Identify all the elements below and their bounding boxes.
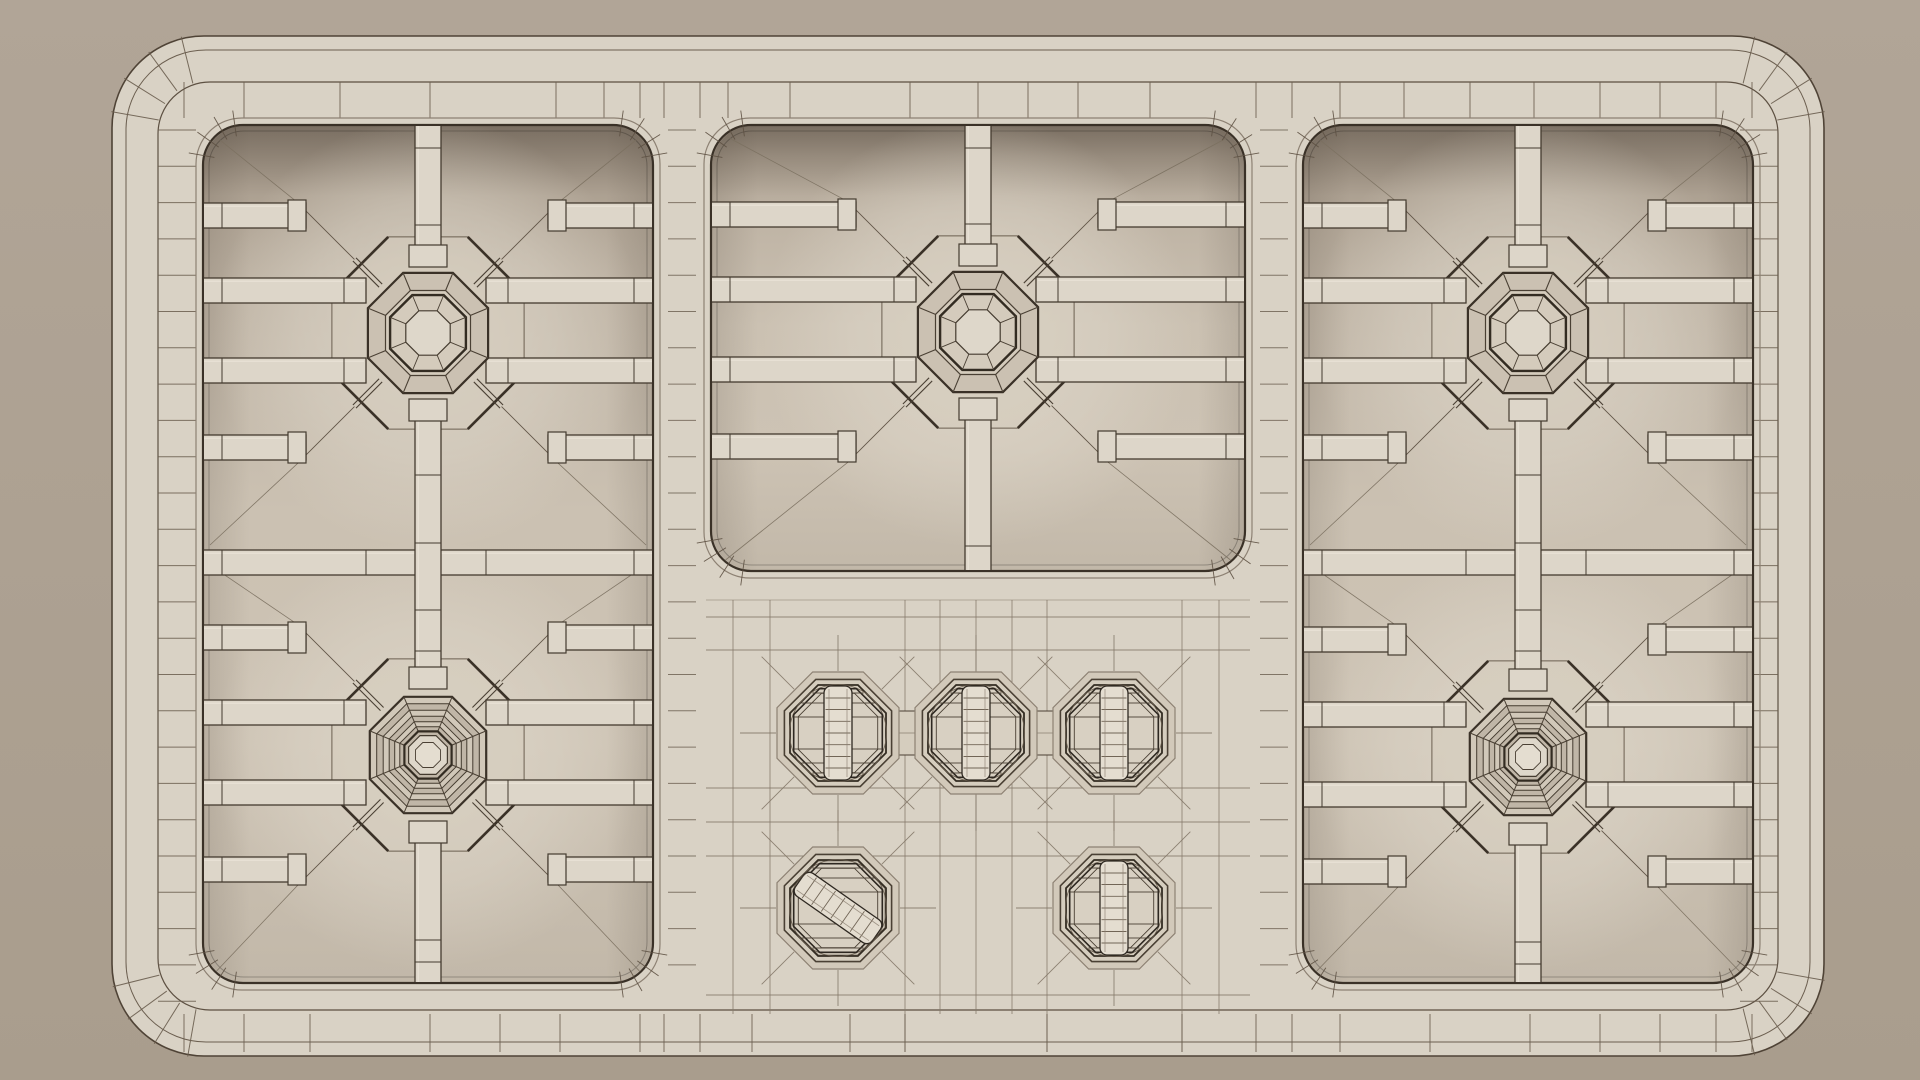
knob-rear-center [915,672,1037,794]
burner-panel-center [697,111,1259,586]
knob-grip [1100,861,1128,955]
render-viewport [0,0,1920,1080]
burner-head-front-right [1470,699,1586,815]
panel-recess-left [202,118,654,984]
burner-panel-left [189,111,667,998]
panel-recess-right [1302,118,1754,984]
knob-rear-right [1053,672,1175,794]
burner-head-rear-right [1468,273,1588,393]
knob-grip [962,686,990,780]
burner-head-rear-left [368,273,488,393]
cooktop-wireframe-render [0,0,1920,1080]
burner-panel-right [1289,111,1767,998]
knob-front-right [1053,847,1175,969]
knob-rear-left [777,672,899,794]
knob-grip [1100,686,1128,780]
knob-grip [824,686,852,780]
knob-front-left [777,847,899,969]
burner-head-rear-center [918,272,1038,392]
burner-head-front-left [370,697,486,813]
